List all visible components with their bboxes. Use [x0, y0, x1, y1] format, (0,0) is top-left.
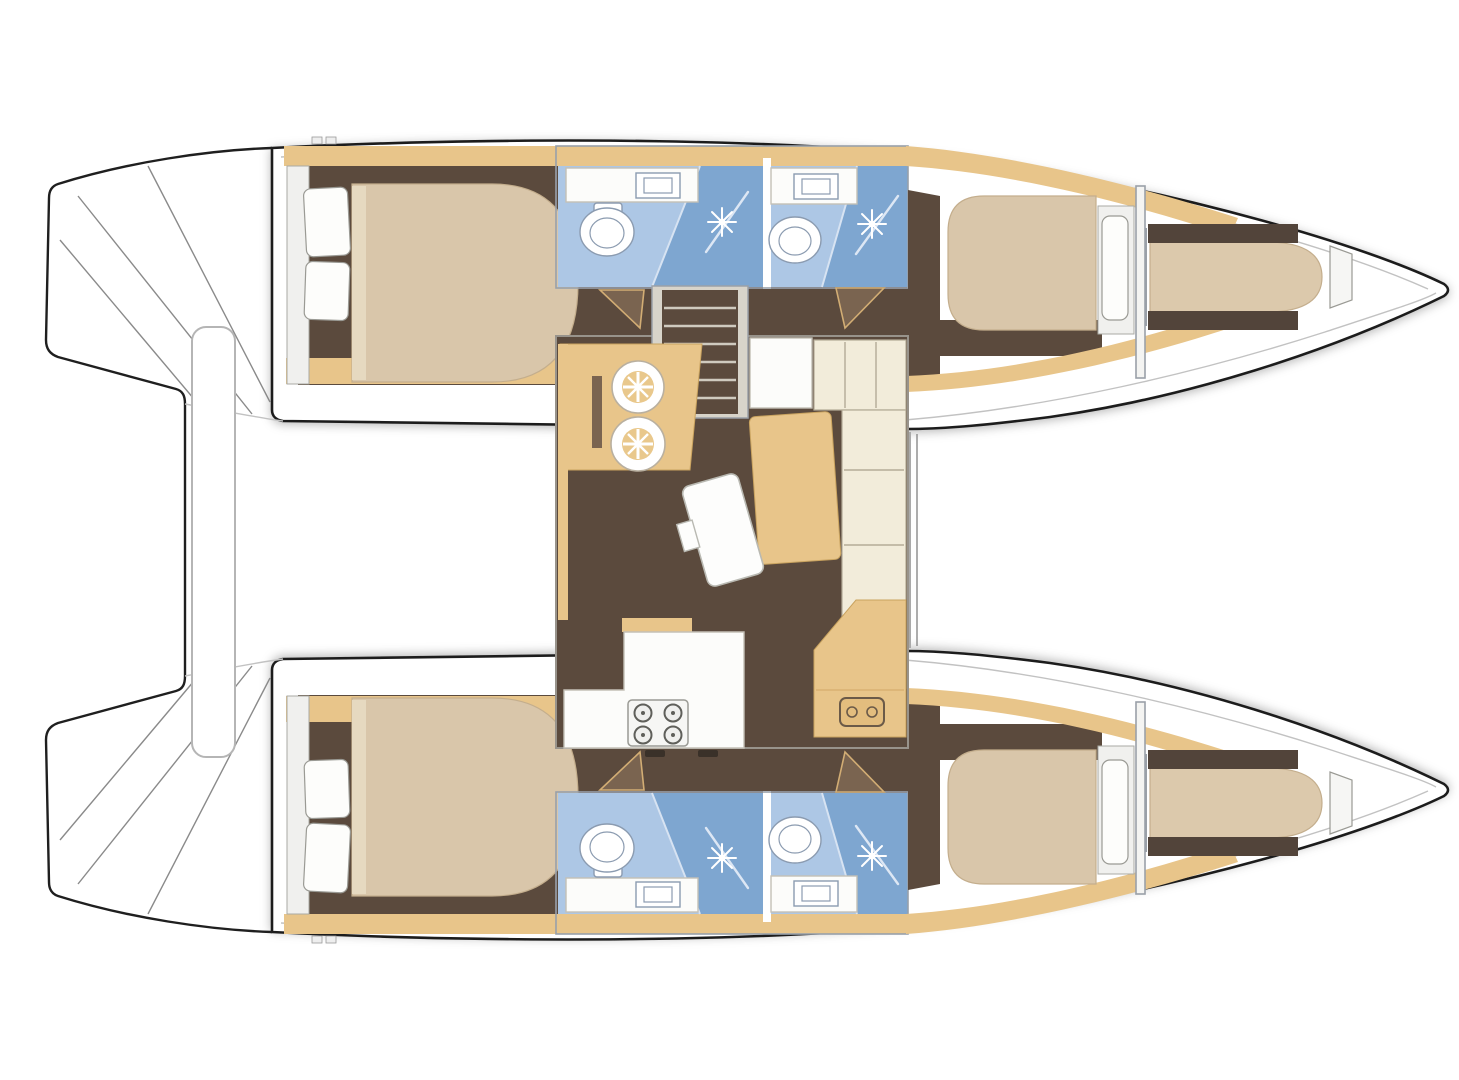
foredeck-door	[750, 338, 812, 408]
galley-trim	[622, 618, 692, 632]
door-handle	[698, 750, 718, 757]
salon	[556, 286, 908, 757]
round-sink-icon	[611, 417, 665, 471]
catamaran-floorplan: Catamaran interior deck floor plan, top …	[0, 0, 1459, 1080]
round-sink-icon	[612, 361, 664, 413]
nav-desk	[560, 344, 702, 471]
stove-burner-icon	[628, 700, 688, 746]
door-handle	[645, 750, 665, 757]
aft-deck-structure	[192, 327, 235, 757]
salon-table	[749, 411, 841, 564]
salon-side-cabinet	[558, 344, 568, 620]
floorplan-canvas: Catamaran interior deck floor plan, top …	[0, 0, 1459, 1080]
desk-slot	[592, 376, 602, 448]
